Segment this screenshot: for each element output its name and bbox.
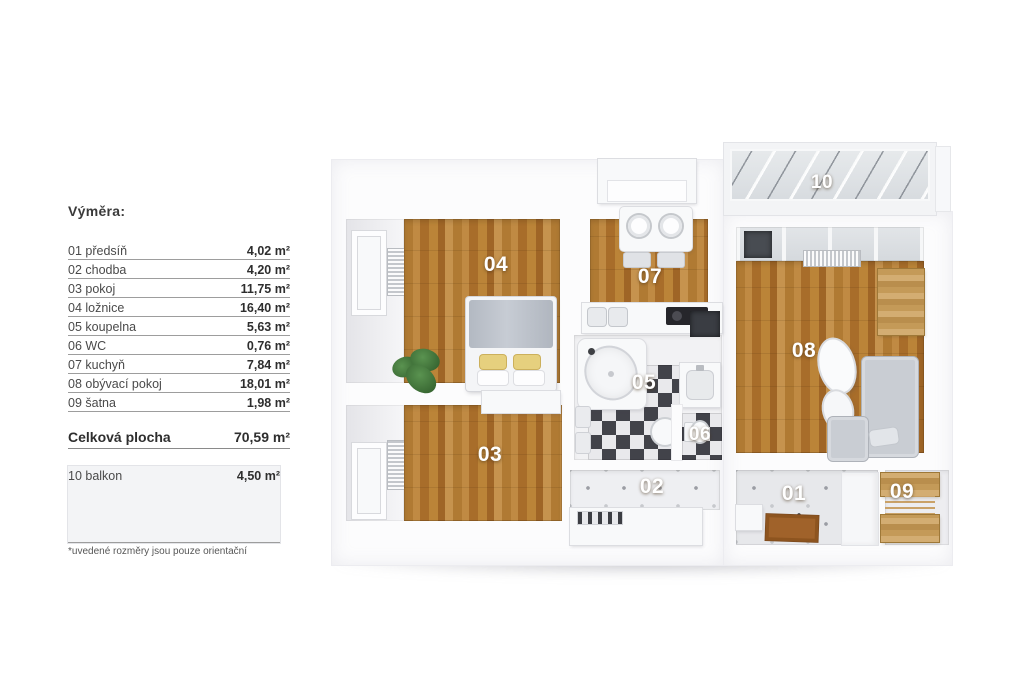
room-name: 03 pokoj [68, 282, 115, 296]
burner [672, 311, 682, 321]
page: { "legend": { "title": "Výměra:", "rows"… [0, 0, 1024, 683]
room-area: 1,98 m² [247, 396, 290, 410]
total-label: Celková plocha [68, 429, 171, 445]
entry-wardrobe [842, 473, 878, 545]
legend-row-01: 01 předsíň 4,02 m² [68, 241, 290, 260]
room-label-01: 01 [782, 482, 806, 506]
bed-pillow-yellow-right [514, 355, 540, 369]
room-name: 01 předsíň [68, 244, 127, 258]
room-area: 4,02 m² [247, 244, 290, 258]
dining-table [620, 207, 692, 251]
legend-title: Výměra: [68, 203, 290, 219]
plate-left [628, 215, 650, 237]
window-room03 [352, 443, 386, 519]
legend-row-02: 02 chodba 4,20 m² [68, 260, 290, 279]
room-name: 08 obývací pokoj [68, 377, 162, 391]
room-label-02: 02 [640, 475, 664, 499]
legend-balcony-row: 10 balkon 4,50 m² [68, 466, 280, 543]
room-label-06: 06 [689, 424, 711, 446]
doormat [766, 514, 819, 542]
bed-duvet [469, 300, 553, 348]
room-label-08: 08 [792, 339, 816, 363]
room-area: 5,63 m² [247, 320, 290, 334]
room-area: 0,76 m² [247, 339, 290, 353]
towel [576, 407, 590, 427]
washbasin-cabinet [680, 363, 720, 407]
plate-right [660, 215, 682, 237]
bathtub-drain [608, 371, 614, 377]
towel [576, 433, 590, 453]
legend-panel: Výměra: 01 předsíň 4,02 m² 02 chodba 4,2… [68, 203, 290, 557]
legend-total-row: Celková plocha 70,59 m² [68, 427, 290, 449]
installation-shaft [690, 311, 720, 337]
sink-basin-right [609, 308, 627, 326]
room-name: 06 WC [68, 339, 106, 353]
room-area: 4,50 m² [237, 469, 280, 483]
shoe-rack [578, 512, 622, 524]
floor-plan: 04 07 10 08 05 06 03 02 01 09 [332, 143, 962, 570]
room-label-10: 10 [811, 172, 833, 194]
window-vent-panel [744, 231, 772, 258]
washbasin-bowl [687, 371, 713, 399]
bathtub-faucet [588, 348, 595, 355]
legend-row-05: 05 koupelna 5,63 m² [68, 317, 290, 336]
room-name: 02 chodba [68, 263, 126, 277]
room-area: 7,84 m² [247, 358, 290, 372]
room-label-09: 09 [890, 480, 914, 504]
room-name: 07 kuchyň [68, 358, 125, 372]
balcony-side-frame [936, 147, 950, 211]
room-label-05: 05 [632, 371, 656, 395]
legend-row-03: 03 pokoj 11,75 m² [68, 279, 290, 298]
radiator-living-room [804, 251, 860, 266]
room-area: 4,20 m² [247, 263, 290, 277]
hallway-cabinet [570, 508, 702, 545]
legend-row-08: 08 obývací pokoj 18,01 m² [68, 374, 290, 393]
shelf-unit [878, 269, 924, 335]
bed-pillow-yellow-left [480, 355, 506, 369]
sofa-chaise-section [828, 417, 868, 461]
legend-row-04: 04 ložnice 16,40 m² [68, 298, 290, 317]
entry-bench [736, 505, 762, 530]
room-area: 18,01 m² [240, 377, 290, 391]
kitchen-hood-lower [608, 181, 686, 201]
radiator-bedroom [388, 249, 404, 295]
room-name: 09 šatna [68, 396, 116, 410]
room-label-04: 04 [484, 253, 508, 277]
room-area: 16,40 m² [240, 301, 290, 315]
room-area: 11,75 m² [241, 282, 290, 296]
bed-pillow-white-right [514, 371, 544, 385]
room-label-07: 07 [638, 265, 662, 289]
washbasin-faucet [696, 365, 704, 371]
kitchen-hood-cabinet [598, 159, 696, 203]
room-name: 10 balkon [68, 469, 122, 483]
room-label-03: 03 [478, 443, 502, 467]
potted-plant [390, 347, 442, 393]
window-bedroom [352, 231, 386, 315]
closet-shelf-bottom [881, 515, 939, 542]
bed [466, 297, 556, 391]
wall-05-06 [672, 405, 682, 460]
legend-row-07: 07 kuchyň 7,84 m² [68, 355, 290, 374]
bed-pillow-white-left [478, 371, 508, 385]
legend-footnote: *uvedené rozměry jsou pouze orientační [68, 546, 290, 557]
radiator-room03 [388, 441, 404, 489]
desk-room03 [482, 391, 560, 413]
total-area: 70,59 m² [234, 429, 290, 445]
room-name: 05 koupelna [68, 320, 136, 334]
sink-basin-left [588, 308, 606, 326]
legend-row-06: 06 WC 0,76 m² [68, 336, 290, 355]
legend-row-09: 09 šatna 1,98 m² [68, 393, 290, 412]
room-name: 04 ložnice [68, 301, 124, 315]
